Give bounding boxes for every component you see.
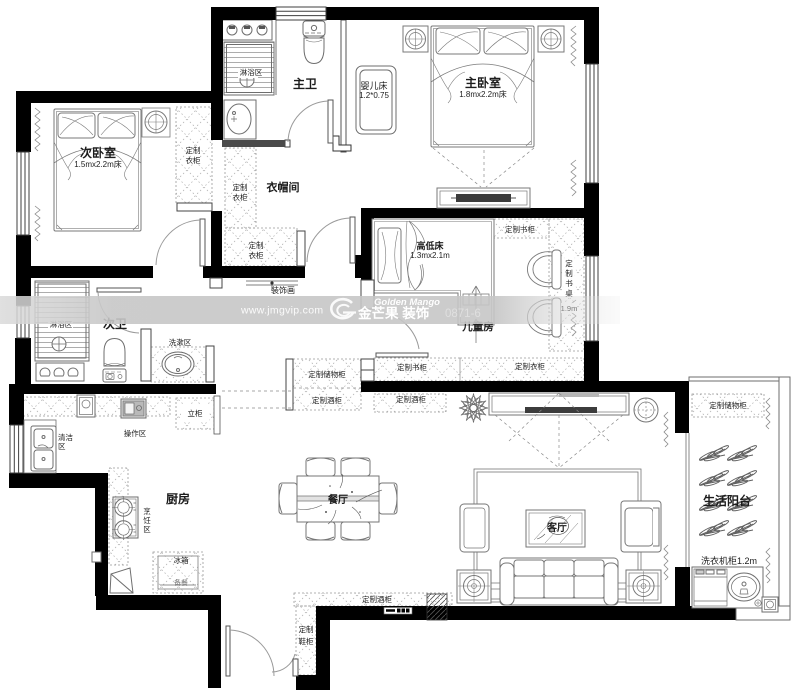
svg-text:区: 区 <box>58 442 66 451</box>
svg-text:书: 书 <box>565 278 573 288</box>
svg-text:备餐: 备餐 <box>174 578 188 587</box>
svg-text:1.8mx2.2m床: 1.8mx2.2m床 <box>459 89 507 99</box>
svg-text:1.5mx2.2m床: 1.5mx2.2m床 <box>74 159 122 169</box>
svg-text:立柜: 立柜 <box>188 408 203 418</box>
svg-text:定: 定 <box>565 258 573 268</box>
svg-text:主卫: 主卫 <box>293 76 317 91</box>
svg-text:生活阳台: 生活阳台 <box>703 493 751 508</box>
svg-text:定制书柜: 定制书柜 <box>505 224 535 234</box>
svg-text:冰箱: 冰箱 <box>174 555 189 565</box>
svg-text:金芒果 装饰: 金芒果 装饰 <box>357 305 430 321</box>
svg-text:定制酒柜: 定制酒柜 <box>396 394 426 404</box>
svg-text:婴儿床: 婴儿床 <box>360 80 387 91</box>
svg-text:主卧室: 主卧室 <box>465 75 501 90</box>
svg-text:0871-6: 0871-6 <box>445 308 481 320</box>
svg-text:制: 制 <box>565 268 573 278</box>
svg-text:厨房: 厨房 <box>166 491 190 506</box>
svg-text:操作区: 操作区 <box>124 428 147 438</box>
svg-text:定制衣柜: 定制衣柜 <box>515 361 545 371</box>
svg-text:定制储物柜: 定制储物柜 <box>709 400 747 410</box>
svg-text:1.2*0.75: 1.2*0.75 <box>359 91 389 100</box>
svg-text:衣柜: 衣柜 <box>186 155 201 165</box>
svg-text:淋浴区: 淋浴区 <box>240 67 263 77</box>
svg-text:定制: 定制 <box>299 624 314 634</box>
svg-text:鞋柜: 鞋柜 <box>299 636 314 646</box>
svg-text:烹: 烹 <box>143 506 151 516</box>
svg-text:定制: 定制 <box>249 240 264 250</box>
svg-text:定制书柜: 定制书柜 <box>397 362 427 372</box>
svg-text:清洁: 清洁 <box>58 432 73 442</box>
svg-text:客厅: 客厅 <box>546 521 567 534</box>
svg-text:饪: 饪 <box>143 515 151 525</box>
svg-text:定制酒柜: 定制酒柜 <box>312 395 342 405</box>
svg-text:定制: 定制 <box>233 182 248 192</box>
svg-text:洗衣机柜1.2m: 洗衣机柜1.2m <box>701 555 757 566</box>
svg-text:衣柜: 衣柜 <box>249 250 264 260</box>
svg-text:区: 区 <box>143 525 151 534</box>
svg-text:定制储物柜: 定制储物柜 <box>308 369 346 379</box>
svg-text:定制酒柜: 定制酒柜 <box>362 594 392 604</box>
svg-text:装饰画: 装饰画 <box>271 285 295 295</box>
svg-text:定制: 定制 <box>186 145 201 155</box>
svg-text:高低床: 高低床 <box>416 240 444 251</box>
svg-text:餐厅: 餐厅 <box>327 493 348 506</box>
svg-text:洗漱区: 洗漱区 <box>169 337 192 347</box>
svg-text:衣帽间: 衣帽间 <box>267 180 300 194</box>
svg-text:次卧室: 次卧室 <box>80 145 116 160</box>
svg-text:1.3mx2.1m: 1.3mx2.1m <box>410 251 450 260</box>
svg-text:衣柜: 衣柜 <box>233 192 248 202</box>
svg-text:www.jmgvip.com: www.jmgvip.com <box>240 305 323 317</box>
